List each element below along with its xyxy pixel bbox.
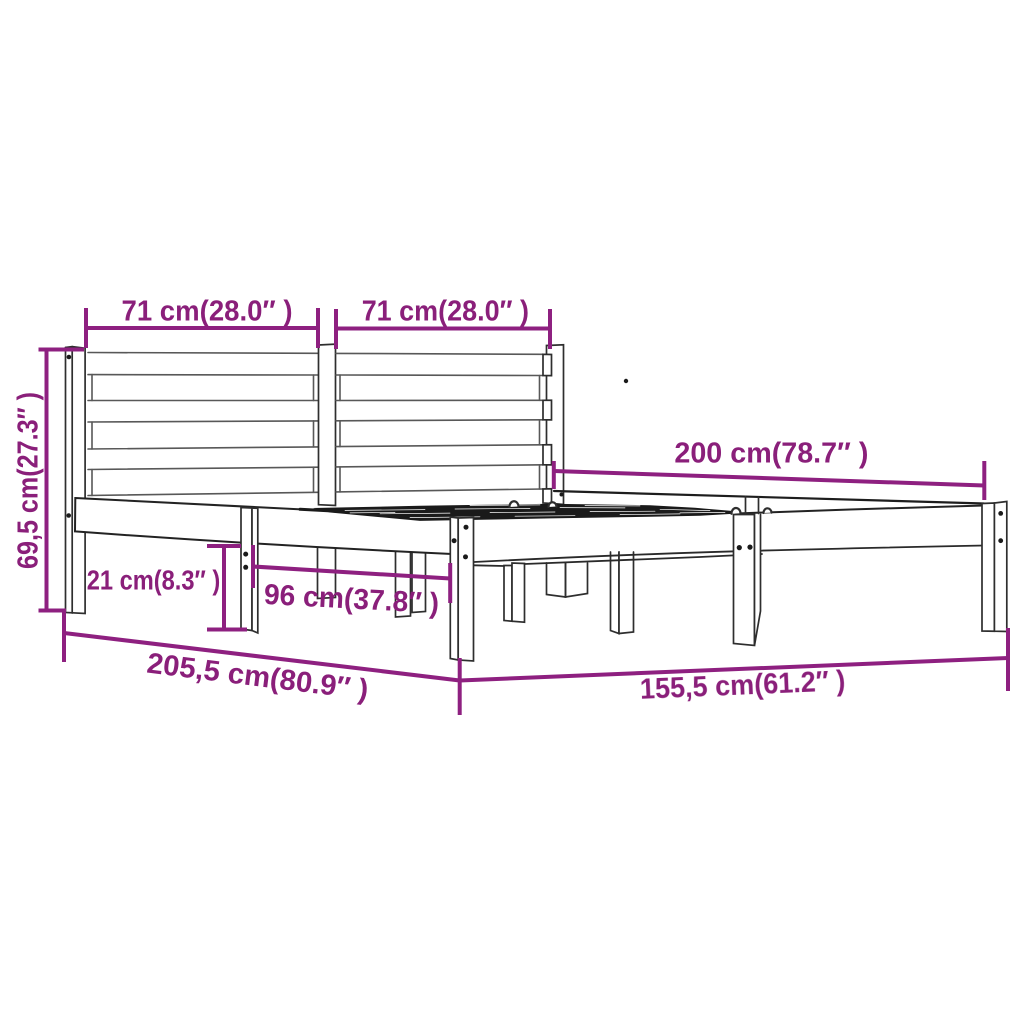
svg-text:71 cm(28.0″ ): 71 cm(28.0″ ) xyxy=(122,296,293,328)
svg-text:21 cm(8.3″ ): 21 cm(8.3″ ) xyxy=(87,565,221,596)
svg-text:96 cm(37.8″ ): 96 cm(37.8″ ) xyxy=(263,579,440,620)
svg-text:71 cm(28.0″ ): 71 cm(28.0″ ) xyxy=(362,296,529,328)
svg-text:69,5 cm(27.3″ ): 69,5 cm(27.3″ ) xyxy=(13,392,45,569)
svg-text:200 cm(78.7″ ): 200 cm(78.7″ ) xyxy=(674,438,868,470)
